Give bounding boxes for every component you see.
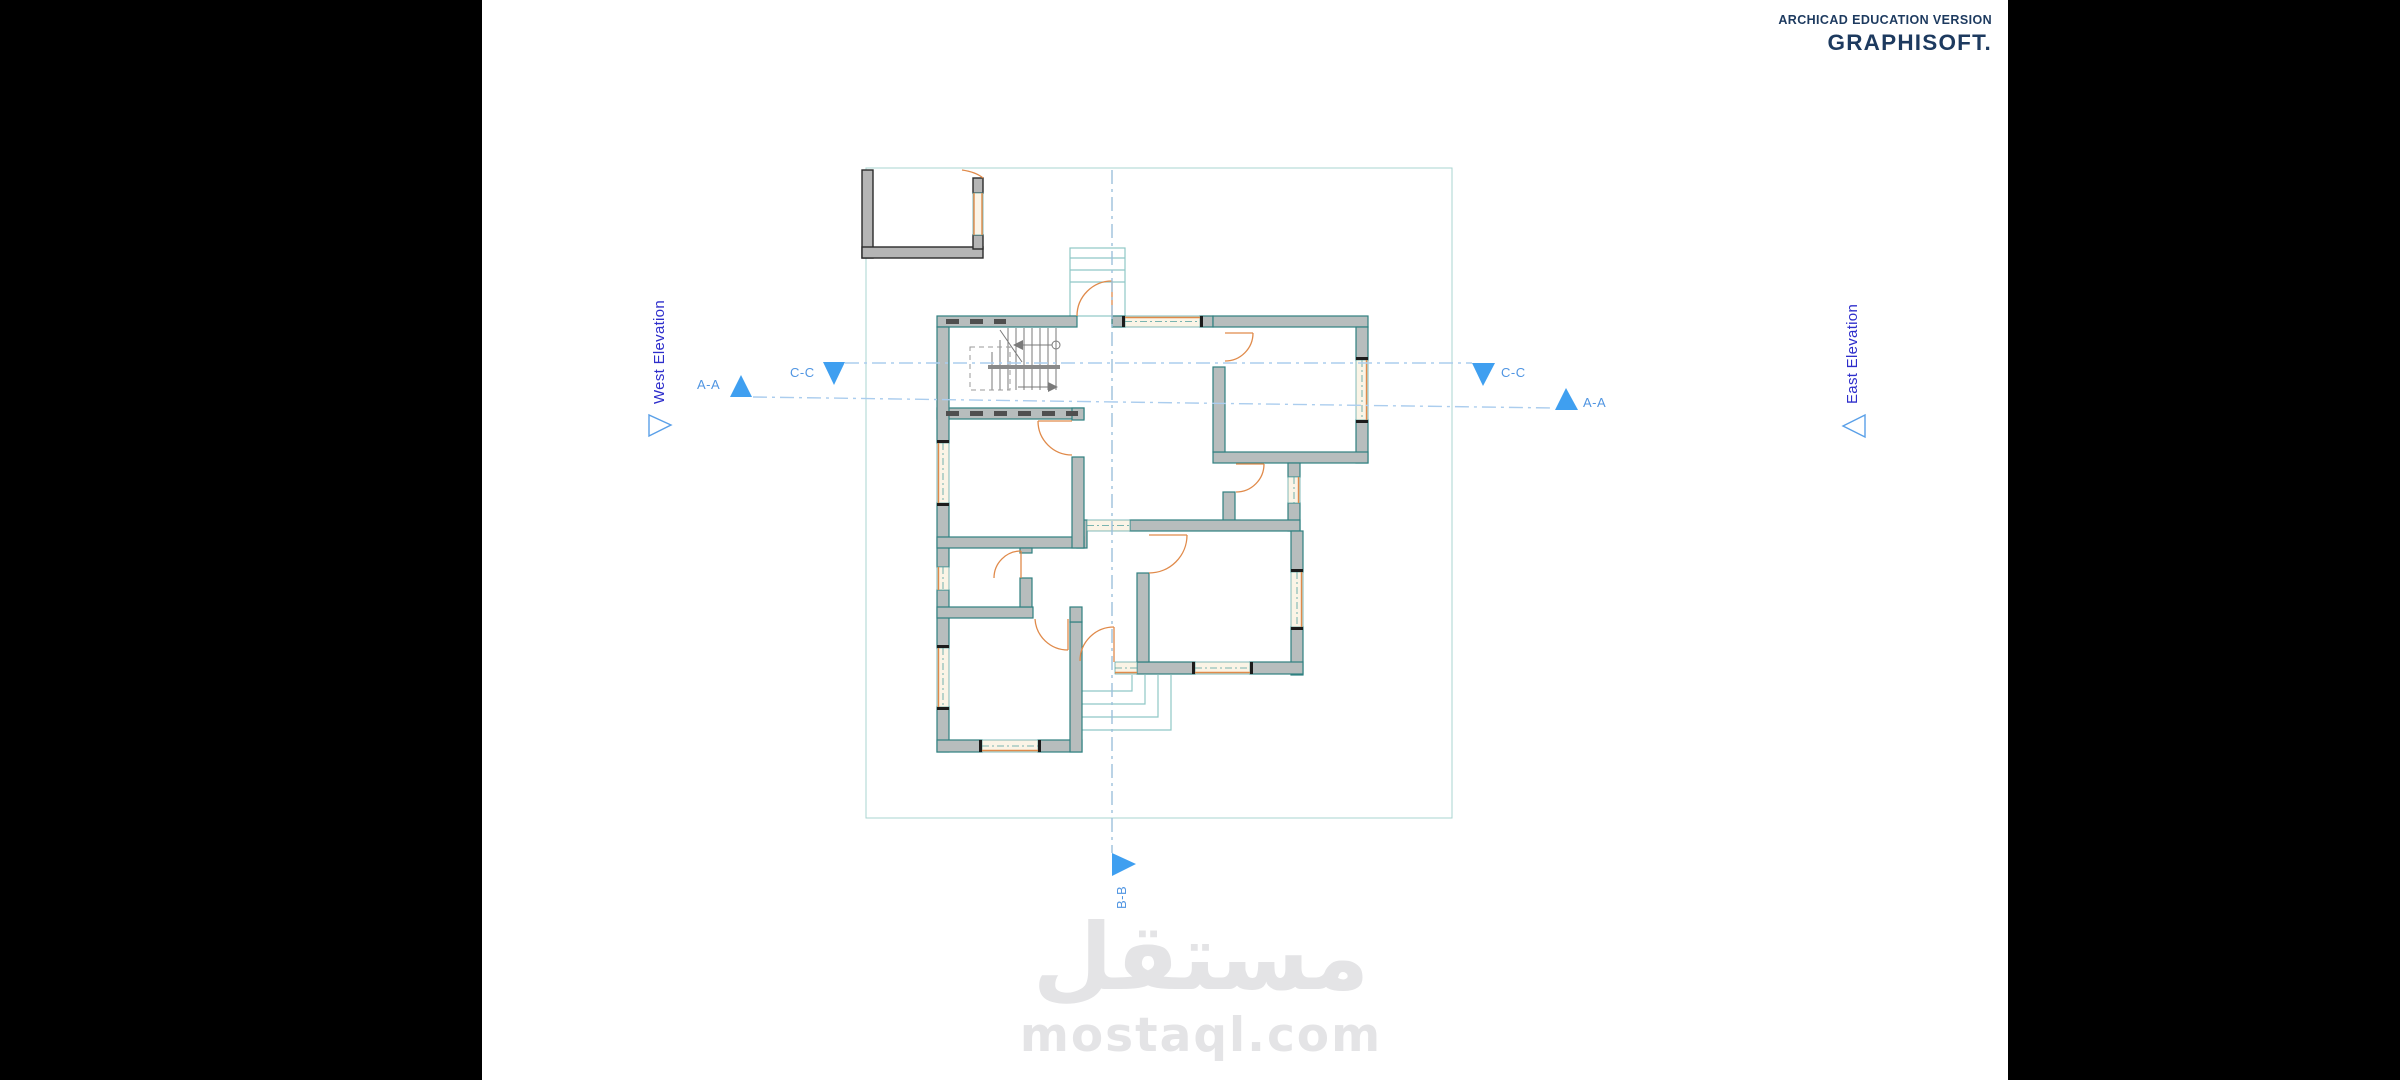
door bbox=[994, 551, 1021, 578]
window bbox=[1122, 316, 1203, 327]
doors-layer bbox=[994, 281, 1264, 662]
door bbox=[1080, 627, 1114, 662]
graphisoft-logo: GRAPHISOFT. bbox=[1600, 30, 1992, 56]
walls-layer bbox=[937, 316, 1368, 752]
section-marker-cc-right-icon[interactable] bbox=[1472, 363, 1495, 386]
watermark-arabic-wordmark: مستقل bbox=[1000, 912, 1402, 1004]
section-label-cc-right[interactable]: C-C bbox=[1501, 365, 1526, 380]
watermark-domain: mostaql.com bbox=[1000, 1012, 1402, 1059]
section-label-cc-left[interactable]: C-C bbox=[790, 365, 815, 380]
window bbox=[1291, 569, 1303, 630]
west-elevation-label[interactable]: West Elevation bbox=[651, 300, 668, 404]
door bbox=[1077, 281, 1112, 316]
app-window: A-A C-C C-C A-A B-B West Elevation East … bbox=[0, 0, 2400, 1080]
east-elevation-label[interactable]: East Elevation bbox=[1844, 304, 1861, 404]
zone-boundary bbox=[866, 168, 1452, 818]
east-elevation-marker-icon[interactable] bbox=[1843, 415, 1865, 437]
west-elevation-marker-icon[interactable] bbox=[649, 415, 671, 436]
education-banner-text: ARCHICAD EDUCATION VERSION bbox=[1600, 13, 1992, 27]
window bbox=[979, 740, 1041, 752]
window bbox=[1288, 477, 1300, 503]
door bbox=[1035, 619, 1068, 650]
door bbox=[1149, 535, 1187, 573]
terrace-steps-south bbox=[1082, 675, 1171, 730]
section-lines bbox=[753, 170, 1555, 853]
window bbox=[1356, 357, 1368, 423]
window bbox=[1087, 520, 1130, 531]
section-marker-bb-icon[interactable] bbox=[1112, 853, 1136, 876]
stair bbox=[946, 322, 1078, 414]
door bbox=[1236, 464, 1264, 492]
window bbox=[1115, 662, 1137, 674]
education-banner: ARCHICAD EDUCATION VERSION GRAPHISOFT. bbox=[1600, 13, 1992, 56]
window bbox=[937, 567, 949, 590]
door bbox=[1038, 421, 1072, 455]
section-label-aa-left[interactable]: A-A bbox=[697, 377, 720, 392]
section-marker-aa-right-icon[interactable] bbox=[1555, 388, 1578, 410]
window bbox=[1192, 662, 1253, 674]
watermark: مستقل mostaql.com bbox=[1000, 912, 1402, 1059]
window bbox=[937, 645, 949, 710]
section-marker-aa-left-icon[interactable] bbox=[730, 375, 752, 397]
section-label-aa-right[interactable]: A-A bbox=[1583, 395, 1606, 410]
section-marker-cc-left-icon[interactable] bbox=[823, 362, 845, 385]
adjacent-structure bbox=[862, 170, 983, 258]
door bbox=[1225, 333, 1253, 361]
window bbox=[937, 440, 949, 506]
